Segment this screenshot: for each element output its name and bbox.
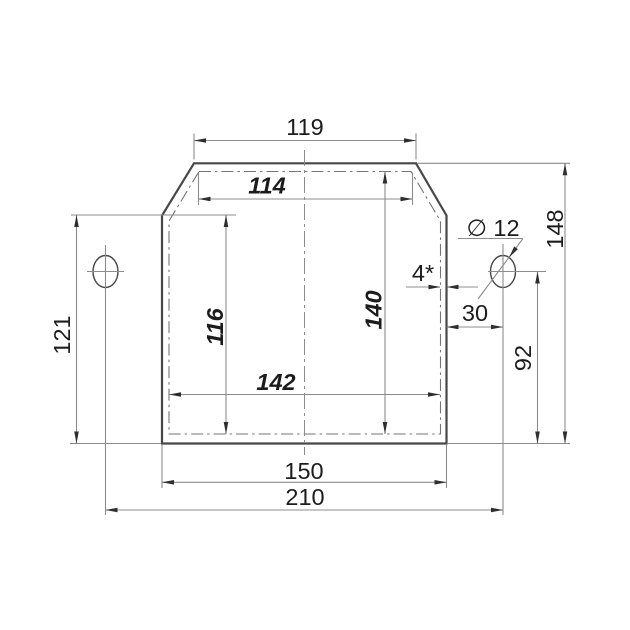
arrow-114-l <box>199 197 211 202</box>
arrow-119-l <box>194 138 206 143</box>
dim-overall-width: 210 <box>285 484 324 510</box>
arrow-116-b <box>224 422 229 434</box>
arrow-30-r <box>491 325 503 330</box>
arrow-92-t <box>535 272 540 284</box>
dim-inner-top-width: 114 <box>248 173 285 199</box>
dimension-arrows <box>74 138 567 512</box>
dim-hole-to-bottom: 92 <box>510 345 536 371</box>
arrow-114-r <box>401 197 413 202</box>
arrow-4-r <box>447 285 459 290</box>
arrow-150-r <box>435 480 447 485</box>
dim-inner-left-height: 116 <box>202 307 228 345</box>
arrow-119-r <box>404 138 416 143</box>
arrow-140-t <box>383 172 388 184</box>
arrow-142-l <box>169 392 181 397</box>
dim-hole-to-wall: 30 <box>462 300 488 326</box>
dim-overall-height: 148 <box>542 209 568 248</box>
arrow-92-b <box>535 432 540 444</box>
left-hole <box>87 245 124 515</box>
arrow-210-r <box>491 508 503 513</box>
arrow-210-l <box>106 508 118 513</box>
dim-hole-diameter: ∅ 12 <box>466 215 519 241</box>
arrow-150-l <box>162 480 174 485</box>
dim-inner-bottom-width: 142 <box>256 369 295 395</box>
dim-outer-top-width: 119 <box>286 114 323 140</box>
part-drawing: 119 114 142 150 210 30 4* ∅ 12 121 116 1… <box>0 0 630 630</box>
arrow-142-r <box>428 392 440 397</box>
arrow-148-t <box>563 163 568 175</box>
extension-lines <box>70 134 570 489</box>
arrow-121-b <box>74 432 79 444</box>
dim-bottom-width: 150 <box>284 458 323 484</box>
technical-drawing-canvas: 119 114 142 150 210 30 4* ∅ 12 121 116 1… <box>0 0 630 630</box>
arrow-30-l <box>447 325 459 330</box>
arrow-148-b <box>563 432 568 444</box>
leader-diagonal <box>478 239 523 300</box>
dim-left-height: 121 <box>49 315 75 354</box>
arrow-121-t <box>74 215 79 227</box>
arrow-140-b <box>383 422 388 434</box>
dim-inner-right-height: 140 <box>361 290 387 329</box>
arrow-116-t <box>224 215 229 227</box>
dimension-labels: 119 114 142 150 210 30 4* ∅ 12 121 116 1… <box>49 114 568 510</box>
dim-wall-thickness: 4* <box>412 260 434 286</box>
